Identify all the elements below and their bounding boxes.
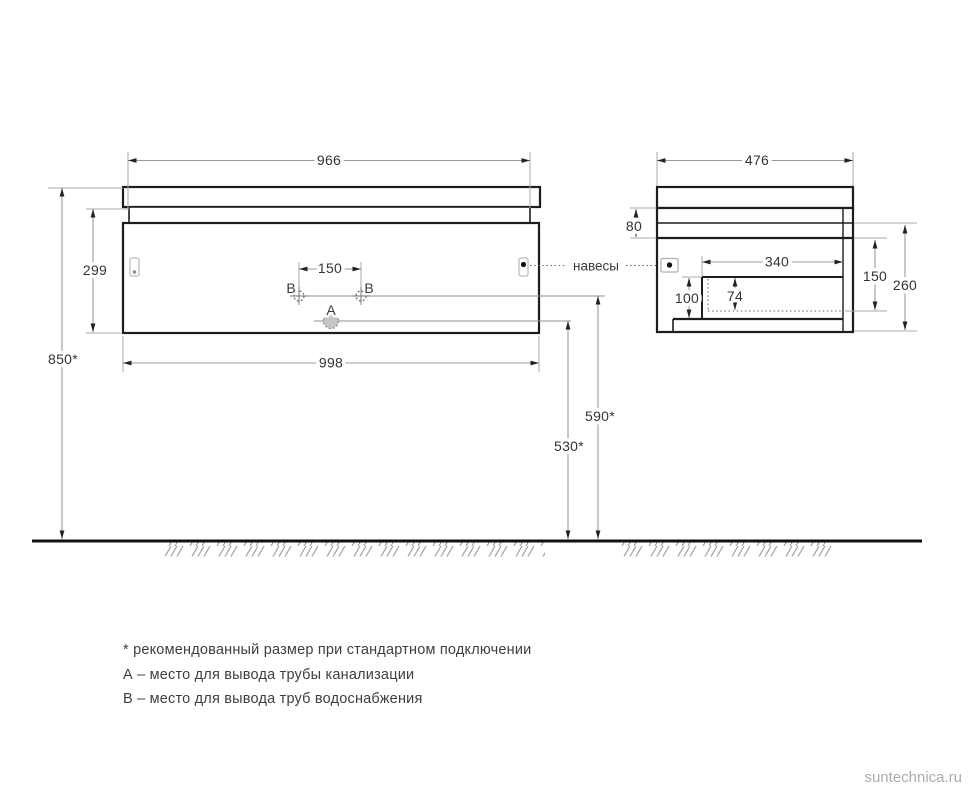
floor-hatch-right [618,543,835,557]
dim-label-100: 100 [675,290,699,306]
label-b-right: B [364,280,373,296]
label-a: A [326,302,336,318]
dim-label-998: 998 [319,355,343,371]
dim-label-260: 260 [893,277,917,293]
note-point-b: В – место для вывода труб водоснабжения [123,687,531,712]
label-b-left: B [286,280,295,296]
floor [32,541,922,557]
drawing-canvas: 966 998 850* 299 150 590* 530* B B A нав… [0,0,970,600]
dim-label-530: 530* [554,438,584,454]
dim-label-299: 299 [83,262,107,278]
side-view: 476 80 340 150 260 100 74 [626,152,917,332]
dim-label-74: 74 [727,288,743,304]
hangers-label: навесы [573,259,619,274]
technical-drawing-page: 966 998 850* 299 150 590* 530* B B A нав… [0,0,970,792]
dim-label-150-side: 150 [863,268,887,284]
dim-label-966: 966 [317,152,341,168]
dim-label-340: 340 [765,254,789,270]
dim-label-590: 590* [585,408,615,424]
front-countertop [123,187,540,207]
side-countertop [657,187,853,208]
dim-label-150-front: 150 [318,260,342,276]
note-point-a: А – место для вывода трубы канализации [123,663,531,688]
floor-hatch-left [165,543,545,557]
hangers-callout: навесы [530,259,660,274]
note-recommended-size: * рекомендованный размер при стандартном… [123,638,531,663]
side-cabinet-body [657,208,853,332]
dim-label-850: 850* [48,351,78,367]
front-apron-trim [129,207,530,223]
dim-label-476: 476 [745,152,769,168]
notes-block: * рекомендованный размер при стандартном… [123,638,531,712]
watermark: suntechnica.ru [864,769,962,786]
dim-label-80: 80 [626,218,642,234]
front-view: 966 998 850* 299 150 590* 530* B B A [48,152,615,539]
